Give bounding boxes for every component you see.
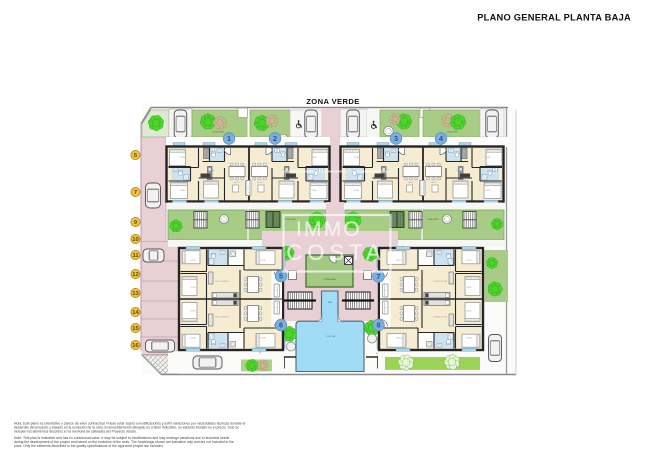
svg-text:price. Only the elements descr: price. Only the elements described in th… — [14, 444, 164, 448]
svg-text:1: 1 — [227, 134, 231, 143]
svg-text:DORM.: DORM. — [466, 336, 472, 338]
svg-text:7: 7 — [376, 272, 380, 281]
svg-text:DORM.: DORM. — [466, 309, 472, 311]
svg-text:IMMO: IMMO — [296, 218, 362, 241]
svg-text:ZONA VERDE: ZONA VERDE — [324, 278, 336, 281]
svg-text:PISCINA: PISCINA — [327, 335, 336, 338]
svg-text:15: 15 — [132, 326, 139, 332]
svg-text:ZONA VERDE: ZONA VERDE — [284, 218, 296, 221]
svg-text:13: 13 — [132, 291, 138, 297]
svg-text:DORM.: DORM. — [396, 260, 402, 262]
svg-text:11: 11 — [132, 253, 139, 259]
svg-text:ZONA VERDE: ZONA VERDE — [427, 218, 439, 221]
svg-text:PLANO GENERAL PLANTA BAJA: PLANO GENERAL PLANTA BAJA — [477, 13, 631, 23]
svg-text:7: 7 — [134, 190, 137, 196]
svg-text:10: 10 — [132, 237, 138, 243]
svg-text:SALON: SALON — [257, 181, 264, 184]
svg-text:5: 5 — [279, 271, 283, 280]
svg-text:3: 3 — [394, 134, 398, 143]
svg-text:DORM.: DORM. — [354, 190, 360, 192]
svg-text:SALON: SALON — [234, 181, 241, 184]
svg-text:9: 9 — [134, 220, 137, 226]
svg-text:DORM.: DORM. — [190, 309, 196, 311]
svg-text:ZONA VERDE: ZONA VERDE — [446, 131, 458, 134]
svg-text:DORM.: DORM. — [311, 157, 317, 159]
svg-text:SPA: SPA — [328, 301, 333, 304]
svg-text:DORM.: DORM. — [180, 190, 186, 192]
svg-text:DORM.: DORM. — [466, 260, 472, 262]
svg-text:incluyen los elementos descrit: incluyen los elementos descritos en la m… — [14, 430, 137, 434]
svg-text:SALON: SALON — [431, 181, 438, 184]
svg-text:4: 4 — [439, 134, 443, 143]
svg-text:6: 6 — [279, 320, 283, 329]
svg-text:DORM.: DORM. — [311, 190, 317, 192]
svg-text:2: 2 — [273, 134, 277, 143]
svg-text:DORM.: DORM. — [466, 287, 472, 289]
svg-text:16: 16 — [132, 343, 138, 349]
svg-text:SALON: SALON — [408, 181, 415, 184]
svg-text:ZONA VERDE: ZONA VERDE — [212, 131, 224, 134]
svg-text:DORM.: DORM. — [190, 336, 196, 338]
svg-text:DORM.: DORM. — [260, 260, 266, 262]
svg-text:DORM.: DORM. — [354, 157, 360, 159]
svg-text:ZONA VERDE: ZONA VERDE — [306, 97, 360, 106]
svg-text:8: 8 — [376, 320, 380, 329]
svg-text:DORM.: DORM. — [190, 260, 196, 262]
svg-text:DORM.: DORM. — [396, 336, 402, 338]
svg-text:DORM.: DORM. — [485, 190, 491, 192]
svg-text:12: 12 — [132, 272, 138, 278]
svg-text:DORM.: DORM. — [485, 157, 491, 159]
svg-text:DORM.: DORM. — [260, 336, 266, 338]
svg-text:DORM.: DORM. — [190, 287, 196, 289]
svg-text:COSTA: COSTA — [286, 240, 385, 265]
svg-text:14: 14 — [132, 310, 139, 316]
svg-text:DORM.: DORM. — [180, 157, 186, 159]
